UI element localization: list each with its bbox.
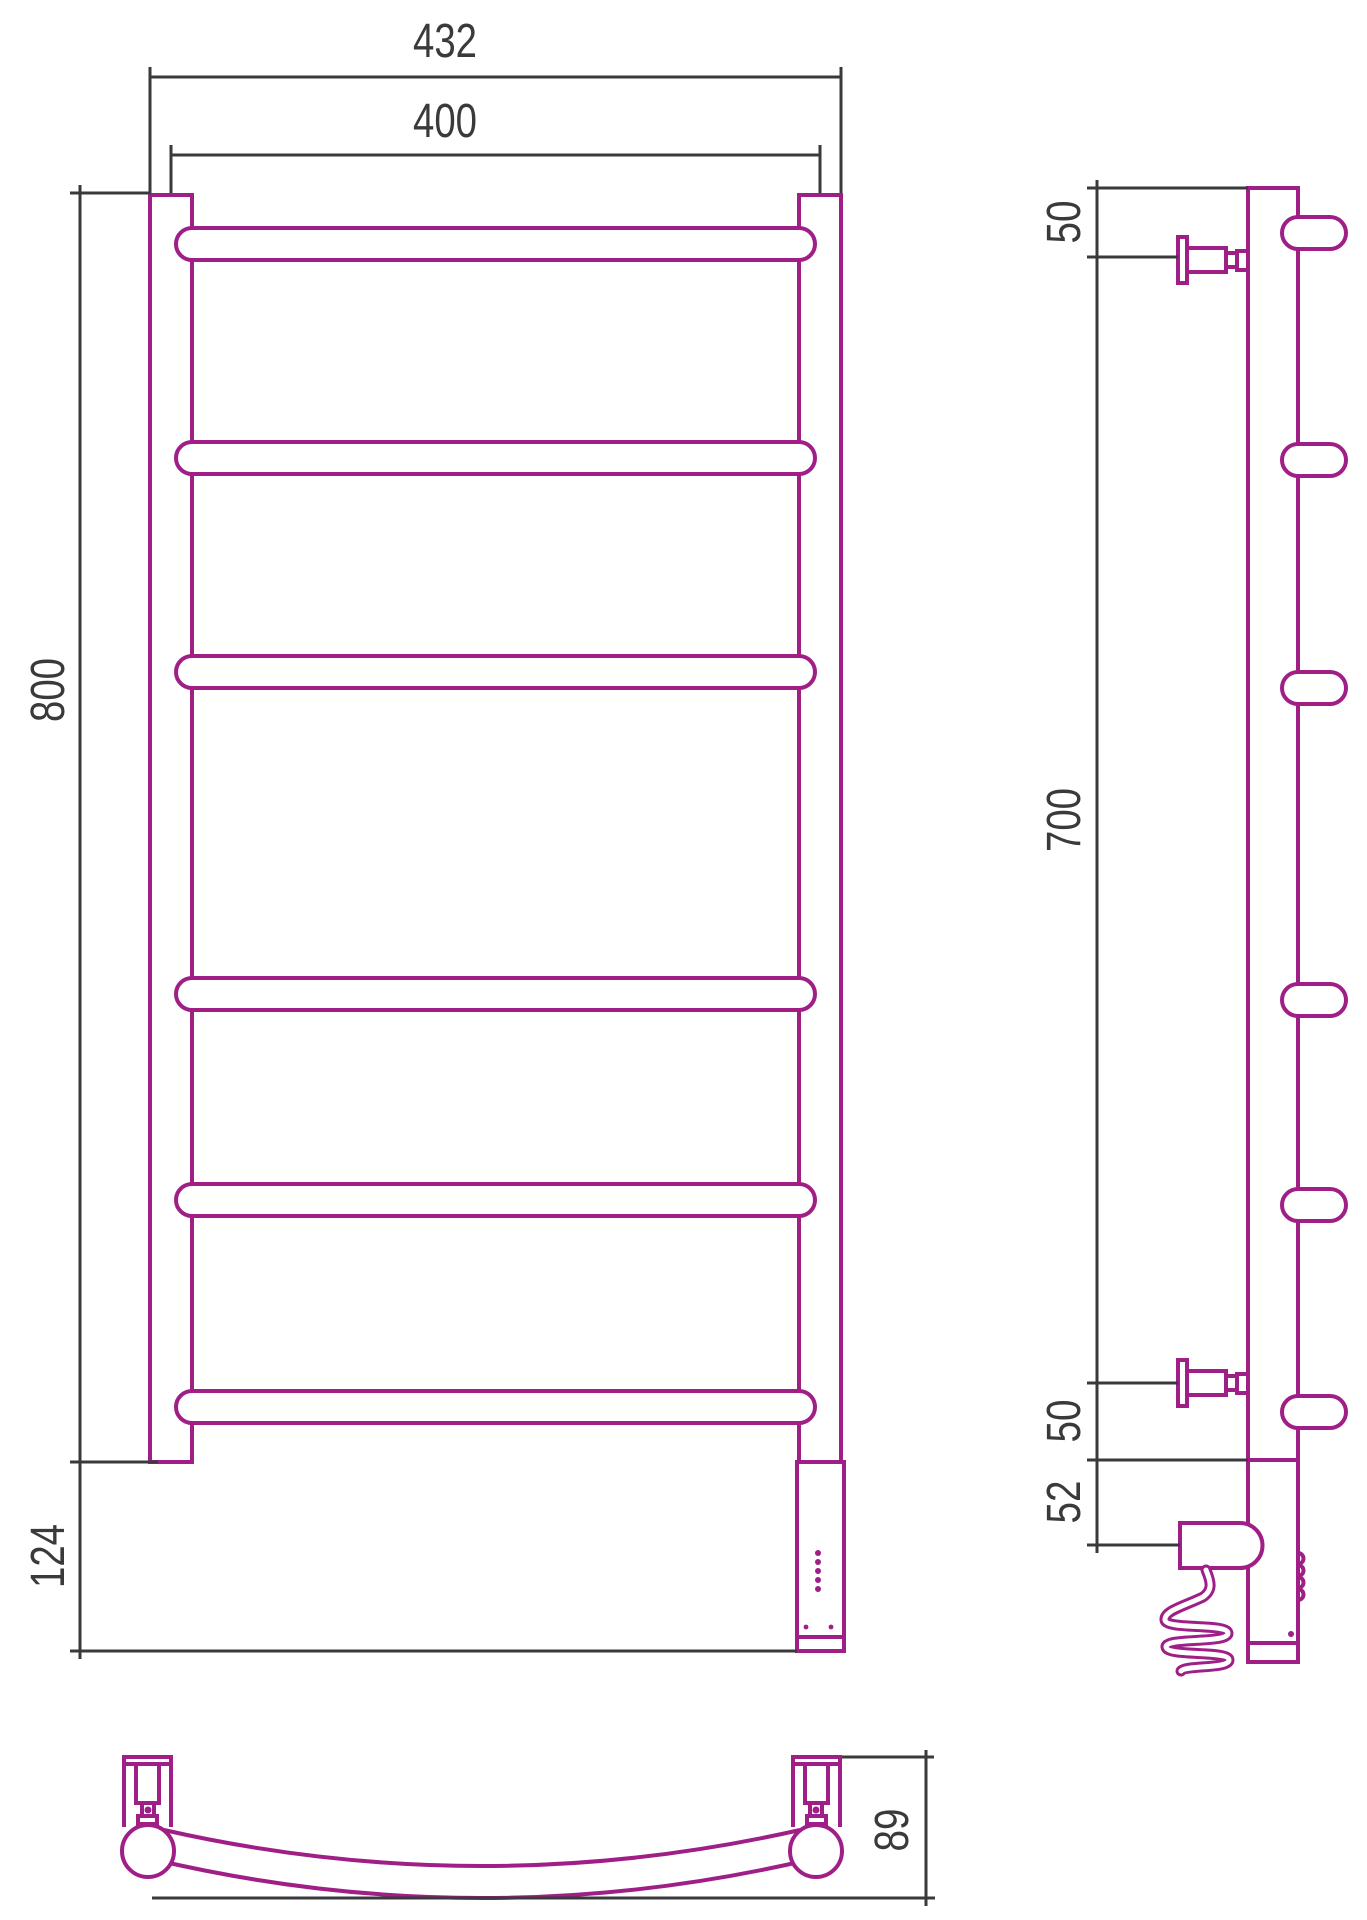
bottom-bar-upper-edge [164,1830,800,1866]
side-dim-bottom-offset-label: 50 [1038,1400,1091,1443]
side-view: 50 700 50 52 [1038,180,1346,1671]
side-dim-chain: 50 700 50 52 [1038,180,1248,1553]
towel-rail-drawing: 432 400 800 124 [0,0,1367,1920]
side-heating-element [1180,1523,1263,1568]
front-dim-bar-width-label: 400 [413,95,477,148]
side-dim-span-label: 700 [1038,788,1091,852]
side-drain-dot [1288,1631,1294,1637]
side-bar-cap-6 [1282,1396,1346,1428]
front-dim-lower-section: 124 [22,1462,797,1659]
bottom-dim-depth: 89 [842,1750,934,1906]
bottom-dim-depth-label: 89 [866,1809,919,1852]
front-bar-1 [176,228,815,260]
bottom-right-ball [790,1825,842,1877]
bottom-right-bracket [793,1757,840,1827]
front-right-post [799,195,841,1462]
side-coiled-cable [1165,1570,1229,1671]
bottom-left-ball [122,1825,174,1877]
side-bar-cap-5 [1282,1189,1346,1221]
bottom-left-bracket [124,1757,171,1827]
front-left-post [150,195,192,1462]
front-heater-housing [797,1462,844,1651]
side-bar-cap-3 [1282,672,1346,704]
front-dim-height: 800 [22,185,158,1462]
front-bar-5 [176,1184,815,1216]
side-dim-heater-offset-label: 52 [1038,1481,1091,1524]
front-bar-4 [176,978,815,1010]
technical-drawing-page: 432 400 800 124 [0,0,1367,1920]
side-bar-cap-4 [1282,984,1346,1016]
side-bar-cap-2 [1282,444,1346,476]
bottom-view: 89 [122,1750,935,1906]
side-bar-cap-1 [1282,217,1346,249]
front-dim-overall-width-label: 432 [413,15,477,68]
front-dim-lower-section-label: 124 [22,1524,75,1588]
front-view: 432 400 800 124 [22,15,844,1659]
side-post [1248,188,1298,1662]
front-dim-overall-width: 432 [150,15,841,193]
front-bar-6 [176,1391,815,1423]
side-bottom-bracket [1178,1360,1248,1406]
side-dim-top-offset-label: 50 [1038,201,1091,244]
front-bar-3 [176,656,815,688]
front-dim-bar-width: 400 [171,95,820,193]
front-dim-height-label: 800 [22,658,75,722]
front-bar-2 [176,442,815,474]
side-top-bracket [1178,237,1248,283]
